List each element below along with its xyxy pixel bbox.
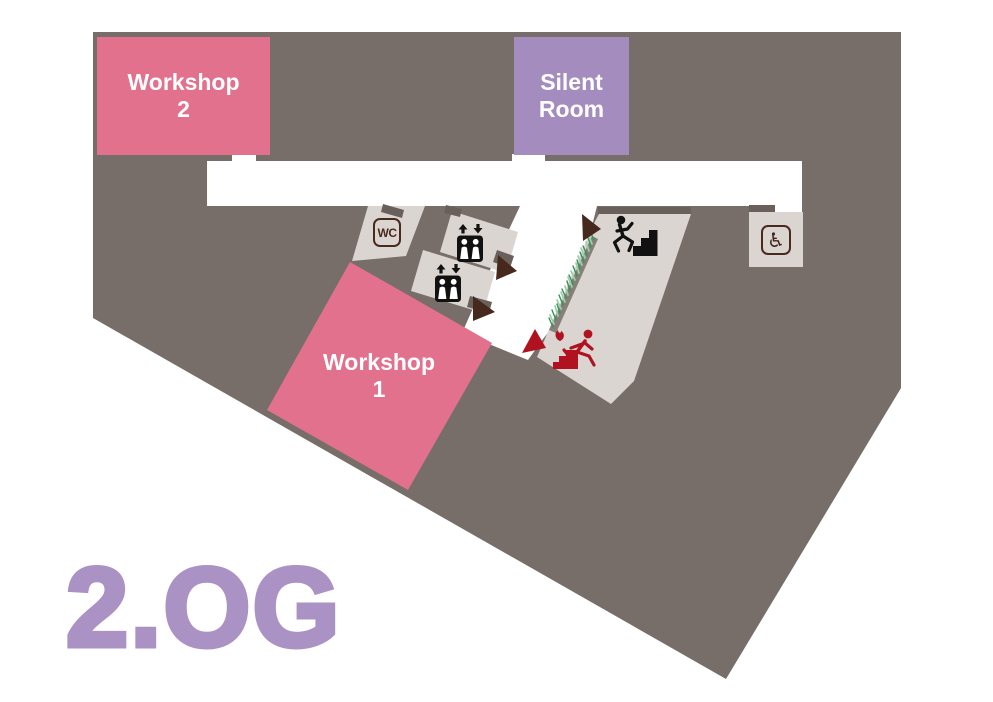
accessible-wc-icon[interactable]: ♿ (761, 225, 791, 255)
room-silent-room[interactable] (514, 37, 629, 155)
wc-icon[interactable]: WC (373, 218, 401, 247)
door-workshop-2 (232, 154, 256, 162)
floor-title: 2.OG (66, 552, 342, 664)
floor-plan-page: Workshop 2 Silent Room Workshop 1 WC ♿ 2… (0, 0, 993, 702)
room-workshop-2[interactable] (97, 37, 270, 155)
main-corridor (207, 161, 802, 206)
door-silent-room (512, 154, 545, 162)
door-accessible-wc (775, 205, 802, 213)
wall-accessible-wc (749, 205, 775, 212)
wall-staircase-top (598, 207, 691, 214)
wc-icon-label: WC (378, 226, 397, 240)
wheelchair-icon: ♿ (767, 228, 785, 252)
